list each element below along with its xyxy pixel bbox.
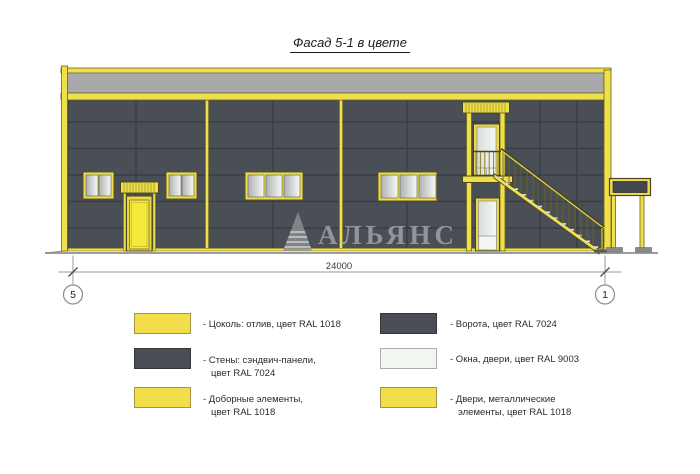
legend-swatch-gates [380, 313, 437, 334]
page-title: Фасад 5-1 в цвете [290, 35, 410, 53]
stair-tower [463, 102, 513, 251]
window-3pane [378, 172, 437, 201]
axis-marker-5: 5 [63, 289, 83, 301]
panel-divider [206, 100, 209, 249]
side-sign-structure [607, 179, 652, 253]
facade-drawing-sheet: Фасад 5-1 в цвете АЛЬЯНС 24000 5 1 - Цок… [0, 0, 700, 474]
axis-marker-1: 1 [595, 289, 615, 301]
legend-swatch-trim [134, 387, 191, 408]
window-3pane [245, 172, 303, 200]
lower-door [476, 198, 500, 251]
watermark-text: АЛЬЯНС [318, 220, 458, 251]
legend-swatch-windows [380, 348, 437, 369]
entrance-door [121, 182, 159, 251]
dimension-value: 24000 [311, 261, 367, 272]
legend-label-gates: - Ворота, цвет RAL 7024 [450, 319, 557, 332]
legend-label-trim: - Доборные элементы, цвет RAL 1018 [203, 394, 303, 419]
legend-label-walls: - Стены: сэндвич-панели, цвет RAL 7024 [203, 355, 316, 380]
window-2pane [83, 172, 114, 199]
legend-label-doors-metal: - Двери, металлические элементы, цвет RA… [450, 394, 571, 419]
legend-label-plinth: - Цоколь: отлив, цвет RAL 1018 [203, 319, 341, 332]
roof-parapet [61, 68, 611, 100]
sign-panel [613, 182, 647, 193]
legend-swatch-doors-metal [380, 387, 437, 408]
legend-swatch-walls [134, 348, 191, 369]
legend-label-windows: - Окна, двери, цвет RAL 9003 [450, 354, 579, 367]
legend-swatch-plinth [134, 313, 191, 334]
window-2pane [166, 172, 197, 199]
